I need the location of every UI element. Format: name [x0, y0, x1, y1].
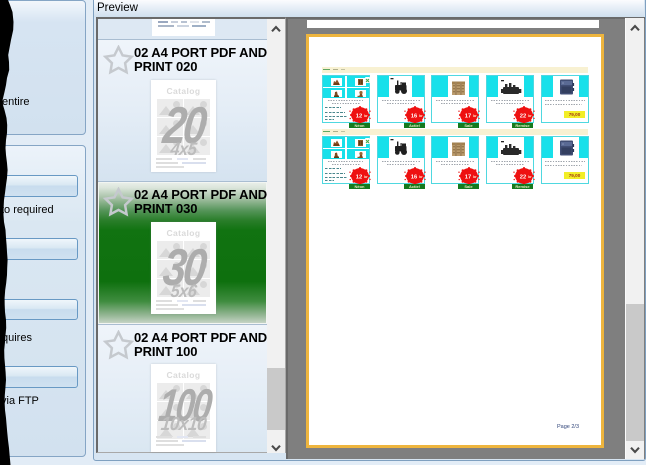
svg-text:kr: kr	[473, 114, 477, 118]
svg-text:12: 12	[356, 174, 362, 180]
svg-text:kr: kr	[528, 175, 532, 179]
svg-text:kr: kr	[528, 114, 532, 118]
svg-text:kr: kr	[419, 175, 423, 179]
svg-text:16: 16	[411, 113, 418, 119]
svg-text:17: 17	[465, 113, 471, 119]
svg-text:17: 17	[465, 174, 471, 180]
svg-text:22: 22	[520, 174, 526, 180]
svg-text:16: 16	[411, 174, 418, 180]
svg-text:22: 22	[520, 113, 526, 119]
svg-text:kr: kr	[364, 175, 368, 179]
svg-text:12: 12	[356, 113, 362, 119]
svg-text:kr: kr	[473, 175, 477, 179]
svg-text:kr: kr	[364, 114, 368, 118]
svg-text:kr: kr	[419, 114, 423, 118]
